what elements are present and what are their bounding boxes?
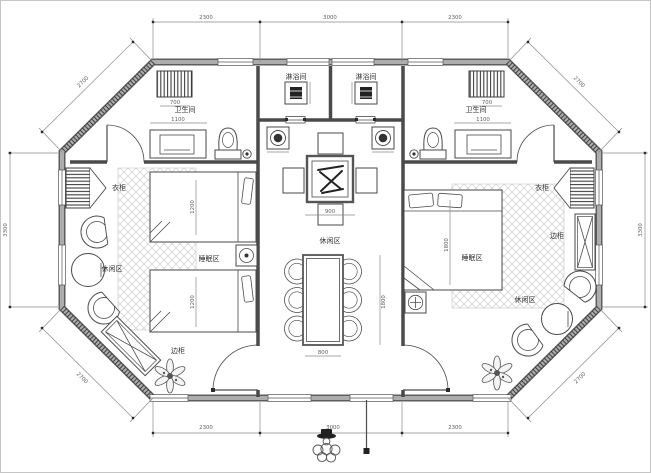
dim-bottom-right: 2300 [448,425,462,431]
floorplan-canvas: 2300 3000 2300 2300 3000 2300 3300 3300 … [0,0,651,473]
label-shower-left: 淋浴间 [286,72,307,81]
bed-right [404,190,502,290]
radiator-unit-left [157,71,192,97]
dim-top-mid: 3000 [323,15,337,21]
window-bottom-2 [268,395,311,402]
nightstand-right [405,292,426,313]
label-shower-right: 淋浴间 [356,72,377,81]
label-bath-right: 卫生间 [466,105,487,114]
shower-left-drain [285,82,307,104]
label-sleep-right: 睡眠区 [462,254,483,262]
radiator-unit-right [469,71,504,97]
label-bath-left: 卫生间 [175,105,196,114]
window-bottom-1 [150,395,188,402]
label-wardrobe-right: 衣柜 [535,183,549,192]
vanity-left [150,130,206,158]
dim-bath-right: 1100 [476,117,490,123]
door-shower-right [355,117,376,124]
floorplan-drawing: 2300 3000 2300 2300 3000 2300 3300 3300 … [0,0,651,473]
dim-bottom-left: 2300 [199,425,213,431]
label-leisure-left: 休闲区 [102,264,123,273]
dim-bed-left-2: 1200 [190,295,196,309]
label-wardrobe-left: 衣柜 [112,183,126,192]
wardrobe-right-unit [570,168,594,208]
vanity-right [455,130,511,158]
window-right-2 [596,245,603,285]
bed-left-2 [150,270,256,332]
pillow [409,193,434,208]
label-leisure-center: 休闲区 [320,236,341,245]
dim-dining-w: 800 [318,350,329,356]
window-right-1 [596,170,603,205]
round-table-left [72,254,105,287]
window-left-1 [59,170,66,205]
label-cabinet-left: 边柜 [171,346,185,355]
nightstand-left [236,245,257,266]
window-top-2 [287,59,329,66]
label-leisure-right: 休闲区 [515,295,536,304]
window-bottom-3 [350,395,393,402]
dining-table [303,255,343,345]
window-bottom-4 [473,395,511,402]
dim-bed-right: 1800 [444,238,450,252]
dim-top-right: 2300 [448,15,462,21]
dim-bath-left: 1100 [171,117,185,123]
bin-right [410,150,418,158]
dim-side-right: 3300 [638,223,644,237]
dim-side-left: 3300 [3,223,9,237]
window-top-4 [408,59,443,66]
basin-right [372,127,394,149]
round-table-right [542,304,573,335]
window-left-2 [59,245,66,285]
window-top-3 [332,59,374,66]
label-cabinet-right: 边柜 [550,231,564,240]
door-shower-left [285,117,306,124]
shower-right-drain [355,82,377,104]
dim-top-left: 2300 [199,15,213,21]
side-cabinet-right [575,214,595,270]
tea-table [307,156,353,202]
window-top-1 [218,59,253,66]
wardrobe-left-unit [66,168,90,208]
dim-dining-h: 1800 [381,295,387,309]
bed-left-1 [150,172,256,242]
dim-tea-table: 900 [325,209,336,215]
dim-bed-left-1: 1200 [190,200,196,214]
bin-left [243,150,251,158]
label-sleep-left: 睡眠区 [199,255,220,263]
basin-left [267,127,289,149]
